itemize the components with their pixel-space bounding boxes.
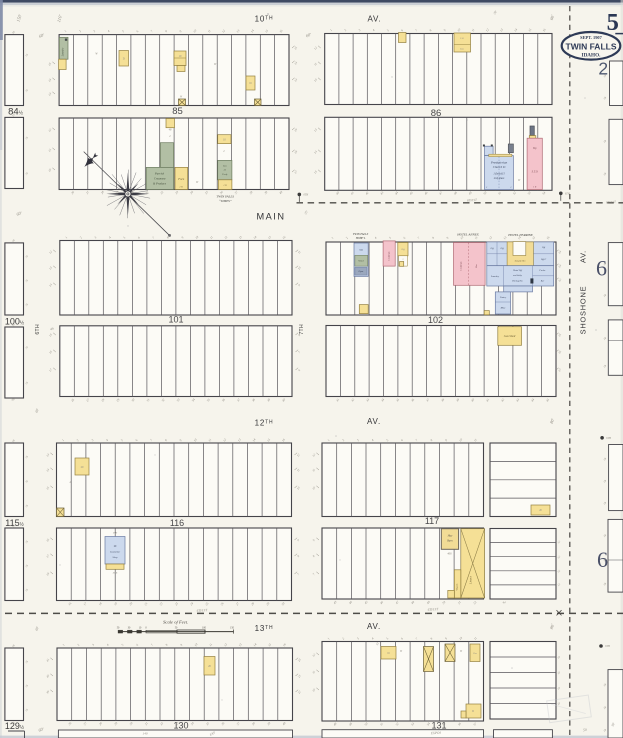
svg-text:Carpenter: Carpenter [110, 551, 120, 554]
svg-text:Parlor: Parlor [538, 270, 545, 272]
svg-text:6TH: 6TH [606, 437, 611, 440]
svg-text:Laundry: Laundry [62, 47, 65, 58]
svg-text:86: 86 [431, 108, 442, 119]
svg-text:TWIN FALLS: TWIN FALLS [566, 42, 617, 52]
svg-text:Off: Off [490, 247, 493, 250]
svg-text:Off C: Off C [541, 258, 547, 261]
svg-text:Oper: Oper [359, 270, 364, 273]
svg-text:D: D [472, 710, 474, 713]
svg-text:44: 44 [503, 601, 507, 605]
svg-text:AV.: AV. [367, 417, 381, 426]
svg-text:Laundry: Laundry [490, 275, 500, 278]
svg-text:7TH: 7TH [299, 324, 305, 334]
svg-text:Pantry: Pantry [499, 296, 507, 299]
svg-text:Dining Rm: Dining Rm [511, 280, 523, 283]
svg-text:Presbyterian: Presbyterian [490, 161, 508, 165]
svg-text:466: 466 [447, 552, 452, 556]
svg-text:“TIMES”: “TIMES” [219, 198, 232, 203]
svg-text:6TH ST: 6TH ST [467, 198, 477, 203]
svg-text:AV.: AV. [579, 250, 588, 263]
svg-text:6TH ST: 6TH ST [606, 200, 616, 205]
svg-text:6TH ST: 6TH ST [197, 608, 209, 613]
svg-text:5: 5 [607, 9, 619, 36]
svg-text:Gas Shed: Gas Shed [504, 334, 516, 338]
svg-text:Ward: Ward [358, 260, 364, 263]
svg-text:Shop: Shop [113, 556, 119, 559]
svg-text:Sample Rm: Sample Rm [515, 260, 526, 263]
svg-text:SHOSHONE: SHOSHONE [579, 286, 588, 335]
svg-text:Church D: Church D [493, 165, 506, 169]
svg-text:Gas: Gas [460, 48, 464, 51]
svg-text:Hse: Hse [475, 264, 478, 269]
svg-text:Wagons: Wagons [457, 583, 459, 590]
svg-text:and lobby: and lobby [513, 275, 522, 277]
svg-text:1: 1 [510, 187, 511, 189]
svg-text:Off: Off [542, 246, 545, 249]
svg-text:Bar: Bar [541, 281, 545, 283]
svg-text:AV.: AV. [368, 15, 382, 24]
svg-text:Livery: Livery [469, 575, 473, 585]
svg-text:Creamery: Creamery [154, 177, 167, 181]
svg-text:Pwdy: Pwdy [221, 173, 228, 176]
svg-text:Hay: Hay [447, 535, 453, 538]
svg-text:Gas: Gas [473, 652, 477, 655]
svg-text:6TH: 6TH [35, 324, 41, 334]
svg-text:Off: Off [500, 247, 503, 250]
svg-text:Parrish: Parrish [154, 172, 165, 176]
svg-text:Barn: Barn [447, 540, 453, 543]
svg-text:85: 85 [172, 106, 183, 117]
svg-text:117: 117 [425, 516, 439, 526]
svg-text:IDAHO.: IDAHO. [582, 52, 602, 58]
svg-text:Scale of Feet.: Scale of Feet. [163, 620, 188, 625]
svg-text:140: 140 [142, 732, 147, 736]
svg-text:EXPOS: EXPOS [430, 731, 442, 736]
svg-text:6TH ST: 6TH ST [428, 607, 440, 612]
svg-text:AV.: AV. [367, 622, 381, 631]
svg-text:roof glass: roof glass [494, 177, 505, 180]
svg-text:D: D [249, 82, 251, 85]
svg-text:MAIN: MAIN [257, 212, 286, 222]
svg-text:Lodgings: Lodgings [388, 251, 391, 261]
svg-text:Gas: Gas [223, 165, 227, 168]
svg-text:1 (brick) 5: 1 (brick) 5 [493, 173, 505, 176]
svg-text:Off: Off [359, 249, 363, 252]
svg-text:Hotel Off: Hotel Off [512, 269, 522, 272]
svg-text:6TH: 6TH [605, 645, 610, 648]
svg-text:S.T.O: S.T.O [532, 171, 538, 174]
svg-text:6: 6 [596, 256, 607, 281]
svg-text:1 R: 1 R [179, 186, 183, 189]
svg-text:SEPT. 1907: SEPT. 1907 [580, 35, 602, 40]
svg-text:Furn: Furn [177, 177, 185, 181]
svg-text:Off: Off [401, 248, 405, 251]
svg-text:40·B: 40·B [113, 572, 118, 575]
svg-text:D: D [387, 652, 389, 655]
svg-text:& Produce: & Produce [153, 182, 167, 186]
svg-text:116: 116 [170, 518, 184, 528]
svg-text:1: 1 [486, 187, 487, 189]
svg-text:6TH: 6TH [303, 194, 308, 197]
svg-text:101: 101 [168, 315, 183, 325]
svg-text:Lodgings: Lodgings [460, 261, 463, 271]
svg-text:1 R: 1 R [223, 184, 227, 187]
svg-text:6TH: 6TH [565, 193, 570, 196]
svg-text:102: 102 [428, 315, 443, 325]
svg-text:D: D [123, 58, 125, 61]
